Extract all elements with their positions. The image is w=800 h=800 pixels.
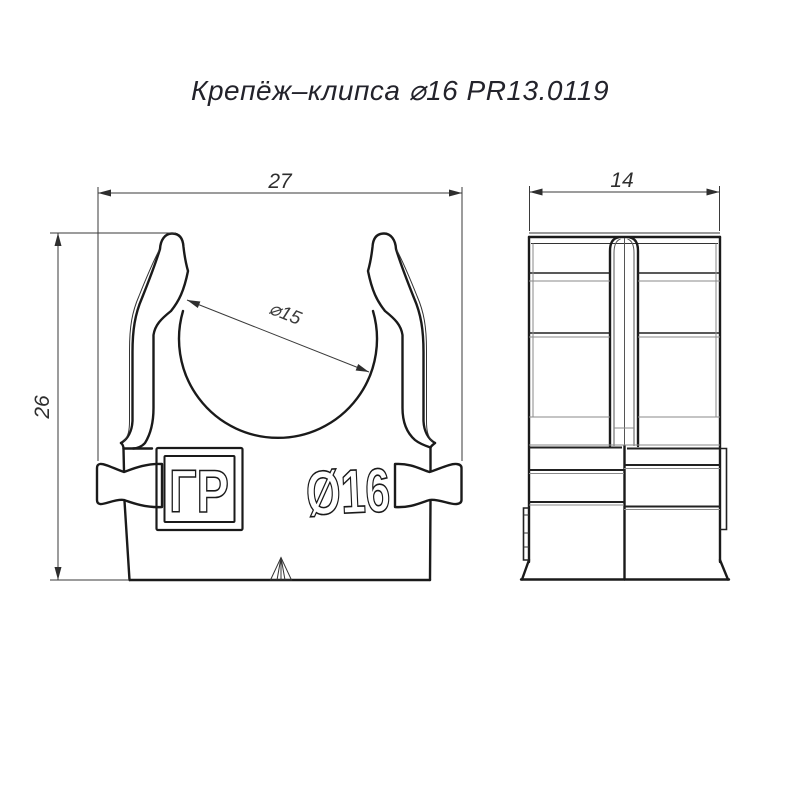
side-left-foot-flare — [522, 560, 529, 580]
dimension-width-label: 27 — [267, 170, 293, 193]
front-body-right-edge-upper — [431, 443, 436, 471]
gate-mark-icon — [271, 558, 292, 581]
dimension-depth-label: 14 — [610, 169, 633, 192]
dimension-inner-diameter-label: ⌀15 — [266, 298, 304, 330]
drawing-canvas: Крепёж–клипса ⌀16 PR13.0119 ГР Ø16 — [0, 0, 800, 800]
side-view: 14 — [521, 169, 729, 580]
front-right-wing-tab — [395, 464, 462, 507]
side-center-slot — [610, 238, 638, 447]
dimension-height-label: 26 — [31, 395, 54, 420]
front-opening-arc — [179, 311, 377, 438]
embossed-size-label: Ø16 — [305, 456, 392, 529]
dimension-inner-diameter: ⌀15 — [186, 297, 371, 376]
front-body-left-edge-lower — [125, 501, 130, 580]
side-right-foot-flare — [720, 560, 728, 580]
logo-block: ГР — [157, 448, 243, 530]
front-body-right-edge-lower — [430, 501, 431, 580]
drawing-title: Крепёж–клипса ⌀16 PR13.0119 — [191, 75, 609, 106]
logo-letters: ГР — [169, 458, 229, 525]
front-body-left-edge-upper — [121, 443, 124, 471]
front-view: ГР Ø16 27 26 ⌀15 — [31, 170, 462, 580]
drawing-sheet: Крепёж–клипса ⌀16 PR13.0119 ГР Ø16 — [0, 0, 800, 800]
dimension-depth: 14 — [530, 169, 720, 231]
front-left-wing-tab — [97, 464, 162, 507]
